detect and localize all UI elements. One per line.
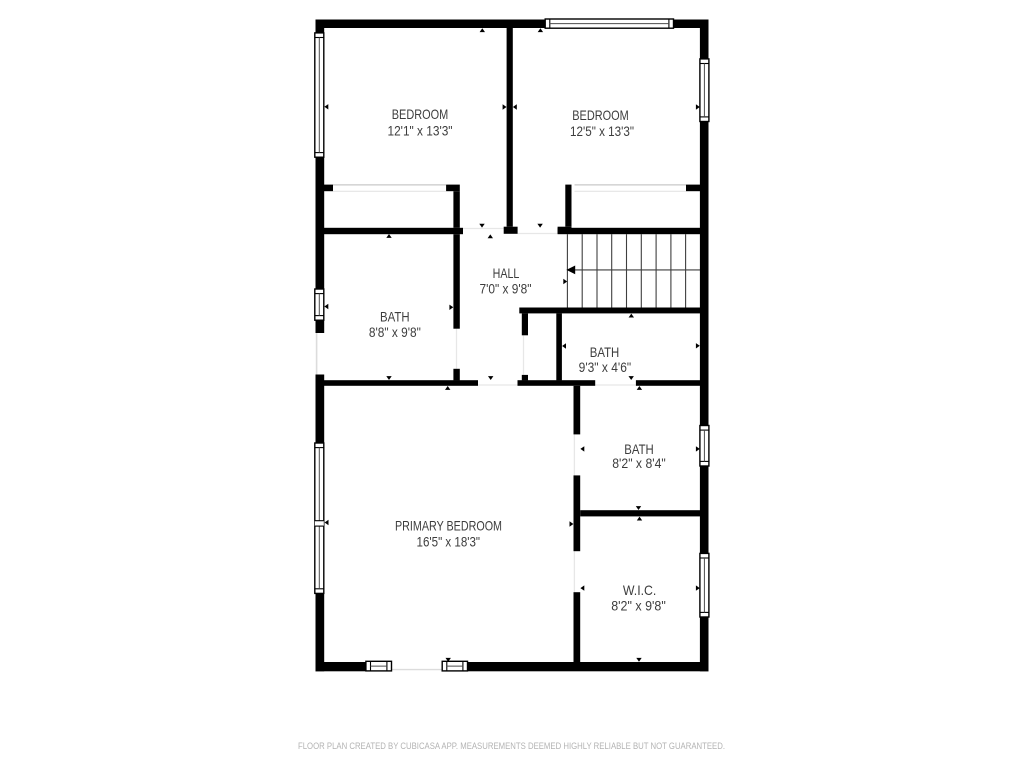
svg-text:16'5" x 18'3": 16'5" x 18'3"	[417, 533, 481, 549]
svg-text:FLOOR PLAN CREATED BY CUBICASA: FLOOR PLAN CREATED BY CUBICASA APP. MEAS…	[298, 741, 725, 752]
svg-text:8'2" x 9'8": 8'2" x 9'8"	[611, 597, 666, 613]
svg-text:12'5" x 13'3": 12'5" x 13'3"	[570, 123, 634, 139]
svg-text:8'2" x 8'4": 8'2" x 8'4"	[612, 455, 666, 471]
svg-text:BATH: BATH	[380, 309, 410, 325]
svg-text:BEDROOM: BEDROOM	[572, 107, 629, 123]
svg-text:9'3" x 4'6": 9'3" x 4'6"	[579, 359, 632, 375]
svg-text:W.I.C.: W.I.C.	[623, 582, 657, 598]
svg-text:BATH: BATH	[590, 344, 620, 360]
svg-text:HALL: HALL	[493, 265, 520, 281]
svg-text:12'1" x 13'3": 12'1" x 13'3"	[388, 122, 453, 138]
svg-text:7'0" x 9'8": 7'0" x 9'8"	[480, 280, 532, 296]
svg-text:BEDROOM: BEDROOM	[392, 106, 449, 122]
svg-text:8'8" x 9'8": 8'8" x 9'8"	[369, 324, 421, 340]
svg-text:PRIMARY BEDROOM: PRIMARY BEDROOM	[395, 517, 502, 533]
